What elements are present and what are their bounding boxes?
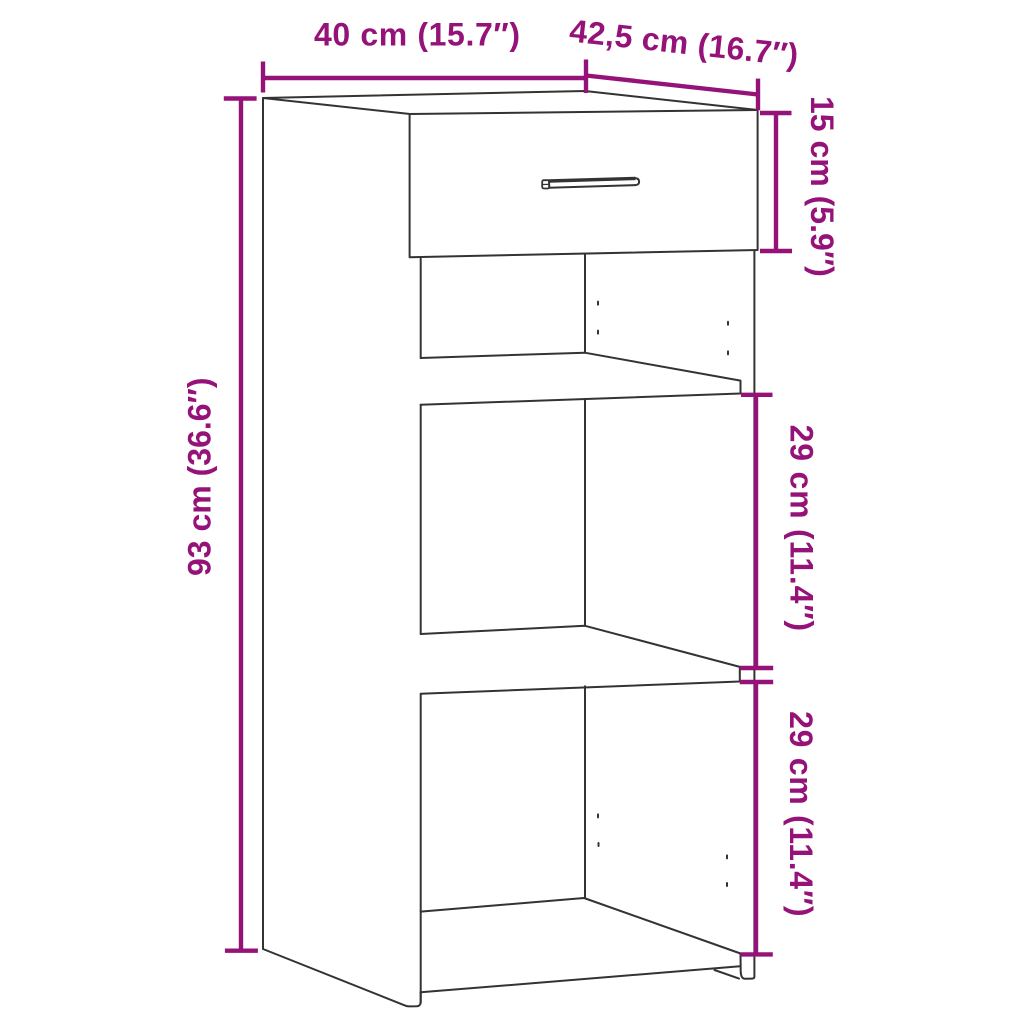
svg-text:29 cm (11.4″): 29 cm (11.4″) xyxy=(783,711,819,917)
svg-text:15 cm (5.9″): 15 cm (5.9″) xyxy=(804,96,840,277)
svg-text:93 cm (36.6″): 93 cm (36.6″) xyxy=(181,377,217,576)
svg-text:40 cm (15.7″): 40 cm (15.7″) xyxy=(314,16,521,52)
svg-text:29 cm (11.4″): 29 cm (11.4″) xyxy=(784,425,820,632)
svg-text:42,5 cm (16.7″): 42,5 cm (16.7″) xyxy=(568,12,801,73)
